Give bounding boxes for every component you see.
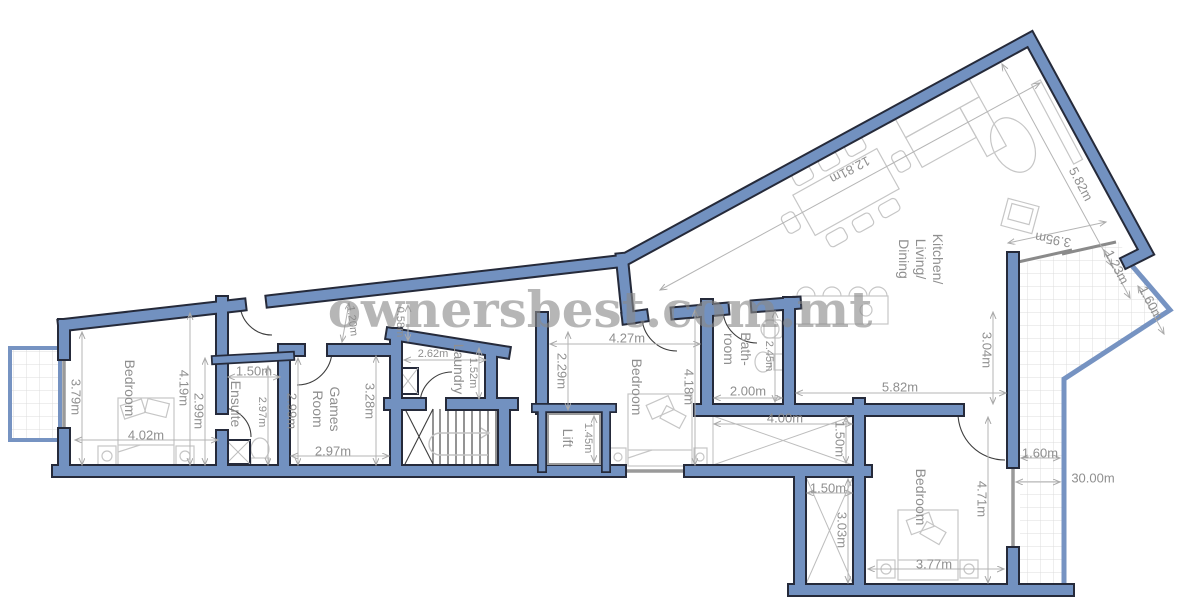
room-label-lift: Lift — [560, 429, 576, 448]
dim-label: 4.71m — [975, 481, 990, 517]
dim-label: 3.77m — [916, 557, 952, 572]
room-label-games-room: Games Room — [310, 386, 343, 431]
dim-label: 2.00m — [730, 384, 766, 399]
dim-label: 5.82m — [1066, 165, 1096, 204]
dim-label: 2.97m — [315, 444, 351, 459]
dim-label: 1.60m — [1022, 446, 1058, 461]
dim-label: 1.50m — [833, 421, 848, 457]
duct-ensuite — [226, 440, 250, 464]
dim-label: 5.82m — [882, 380, 918, 395]
armchair — [1001, 198, 1039, 233]
room-label-laundry: Laundry — [451, 344, 467, 395]
room-label-ensuite: Ensuite — [228, 381, 244, 428]
dim-label: 1.50m — [810, 481, 846, 496]
room-label-line: Room — [310, 390, 326, 427]
room-label-bedroom-left: Bedroom — [122, 360, 138, 417]
dim-label: 2.97m — [256, 397, 268, 428]
floorplan-canvas: 3.79m 4.19m 2.99m 4.02m 1.50m 2.97m 2.99… — [0, 0, 1200, 605]
room-label-bedroom-right: Bedroom — [913, 469, 929, 526]
dim-label: 2.29m — [555, 353, 570, 389]
room-label-line: Dining — [896, 239, 912, 279]
dim-label: 3.95m — [1034, 229, 1072, 250]
room-label-kitchen: Kitchen/ Living/ Dining — [896, 234, 946, 285]
dim-label: 4.02m — [128, 428, 164, 443]
room-label-line: Kitchen/ — [930, 234, 946, 285]
dim-label: 2.99m — [285, 393, 300, 429]
dim-label: 3.28m — [363, 383, 378, 419]
dim-label: 4.18m — [682, 369, 697, 405]
dim-label: 3.79m — [69, 379, 84, 415]
dim-label: 4.00m — [767, 411, 803, 426]
dim-label: 2.99m — [192, 393, 207, 429]
dim-label: 3.04m — [980, 332, 995, 368]
room-label-line: Games — [327, 386, 343, 431]
dim-label: 3.03m — [835, 512, 850, 548]
staircase — [405, 409, 496, 464]
balcony-tiles — [10, 348, 60, 440]
dim-label: 1.52m — [467, 358, 479, 389]
floorplan-svg: 3.79m 4.19m 2.99m 4.02m 1.50m 2.97m 2.99… — [0, 0, 1200, 605]
dim-label: 4.19m — [177, 370, 192, 406]
watermark-text: ownersbest.com.mt — [328, 280, 873, 339]
dim-label: 2.62m — [418, 348, 449, 360]
ensuite-toilet — [251, 438, 269, 466]
balcony-area — [10, 348, 60, 440]
dim-label: 1.50m — [236, 364, 272, 379]
bedroom-right-door-arc — [958, 413, 1005, 460]
room-label-bedroom-mid: Bedroom — [629, 359, 645, 416]
dim-label: 1.45m — [582, 423, 594, 454]
dim-label: 2.45m — [763, 341, 775, 372]
dim-label: 30.00m — [1071, 471, 1114, 486]
room-label-line: Living/ — [913, 239, 929, 280]
